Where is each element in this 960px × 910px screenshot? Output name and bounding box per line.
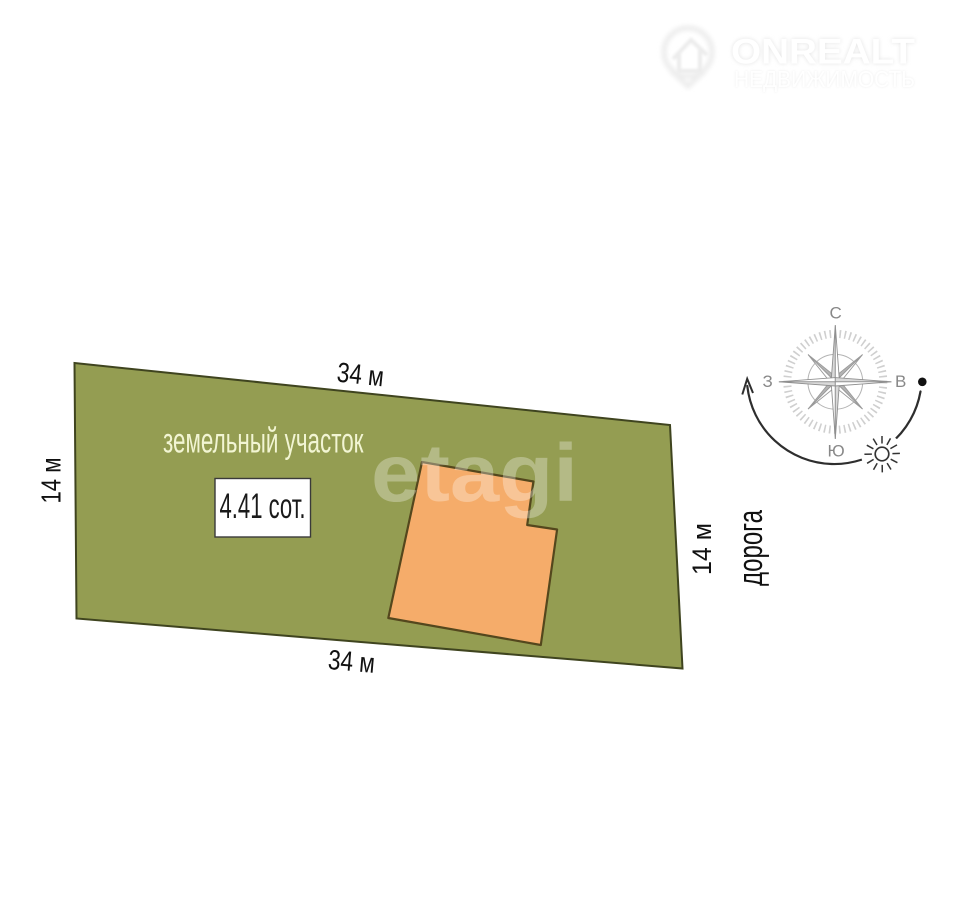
svg-text:14 м: 14 м xyxy=(687,523,717,575)
svg-text:34 м: 34 м xyxy=(327,644,376,679)
svg-text:земельный участок: земельный участок xyxy=(163,422,364,461)
svg-text:Ю: Ю xyxy=(828,442,845,461)
svg-text:4.41 сот.: 4.41 сот. xyxy=(220,487,306,526)
svg-text:НЕДВИЖИМОСТЬ: НЕДВИЖИМОСТЬ xyxy=(734,66,915,92)
svg-text:14 м: 14 м xyxy=(36,458,67,504)
svg-text:С: С xyxy=(830,304,842,323)
svg-text:З: З xyxy=(763,372,773,391)
svg-text:etagi: etagi xyxy=(371,428,578,519)
svg-text:В: В xyxy=(895,372,906,391)
svg-text:34 м: 34 м xyxy=(336,357,386,393)
svg-text:дорога: дорога xyxy=(732,510,770,586)
